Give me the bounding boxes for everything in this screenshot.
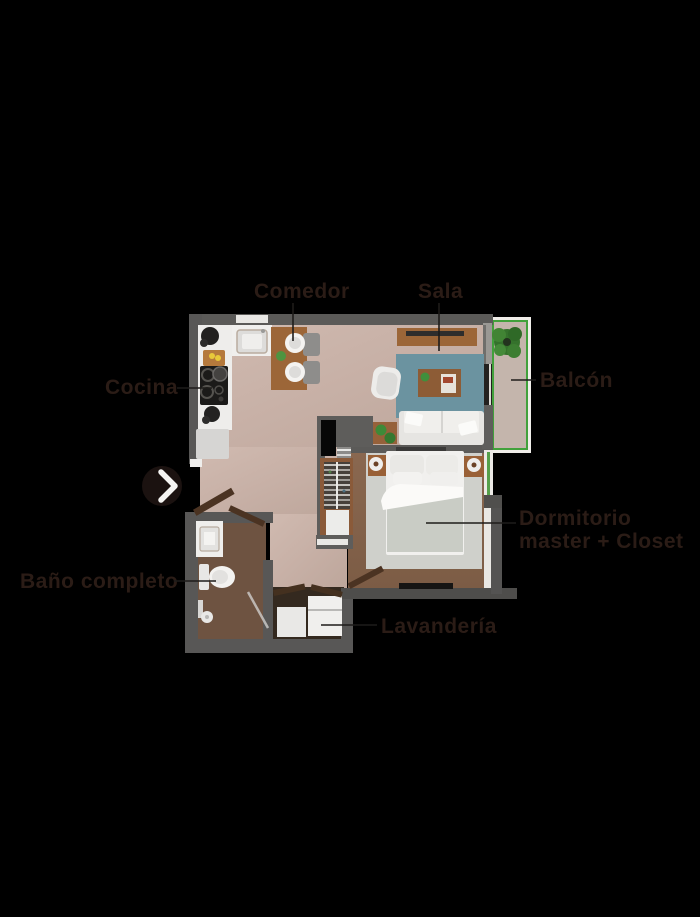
svg-text:Cocina: Cocina bbox=[105, 376, 178, 399]
svg-text:Comedor: Comedor bbox=[254, 280, 350, 303]
svg-text:Sala: Sala bbox=[418, 280, 463, 303]
svg-text:master + Closet: master + Closet bbox=[519, 530, 684, 553]
svg-text:Lavandería: Lavandería bbox=[381, 615, 497, 638]
svg-text:Baño completo: Baño completo bbox=[20, 570, 178, 593]
svg-text:Dormitorio: Dormitorio bbox=[519, 507, 631, 530]
svg-text:Balcón: Balcón bbox=[540, 369, 613, 392]
